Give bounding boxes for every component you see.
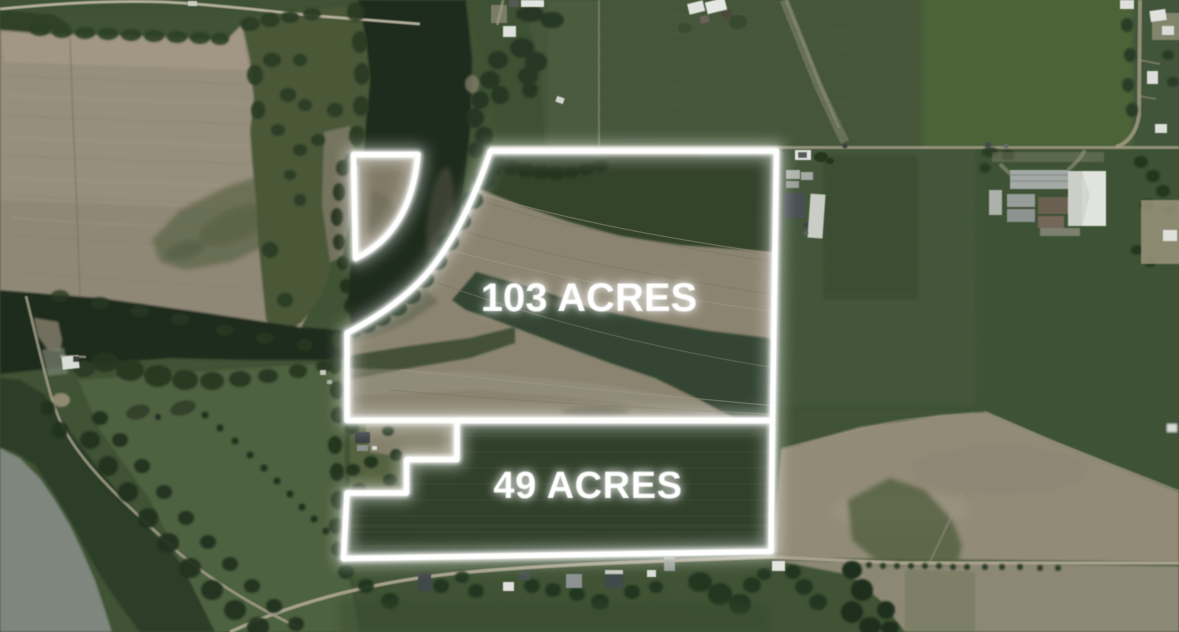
svg-text:103 ACRES: 103 ACRES [481, 276, 697, 320]
svg-text:49 ACRES: 49 ACRES [493, 465, 682, 507]
